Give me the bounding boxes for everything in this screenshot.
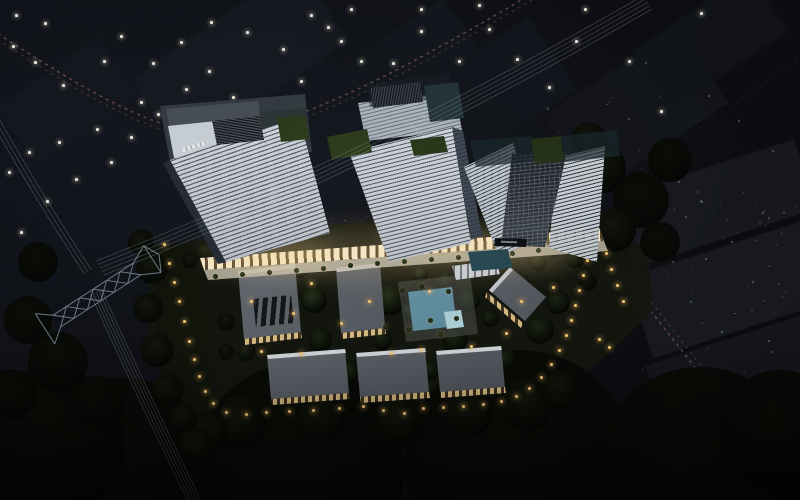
power-line: [0, 120, 85, 274]
power-line: [103, 9, 651, 275]
power-line: [100, 2, 648, 268]
power-lines: [0, 0, 800, 500]
power-line: [93, 293, 193, 500]
power-line: [98, 0, 646, 264]
power-line: [97, 0, 645, 261]
power-line: [101, 289, 201, 500]
power-line: [0, 116, 91, 270]
power-line: [96, 292, 196, 500]
night-aerial-rendering: [0, 0, 800, 500]
power-line: [99, 291, 199, 500]
power-line: [102, 6, 650, 272]
